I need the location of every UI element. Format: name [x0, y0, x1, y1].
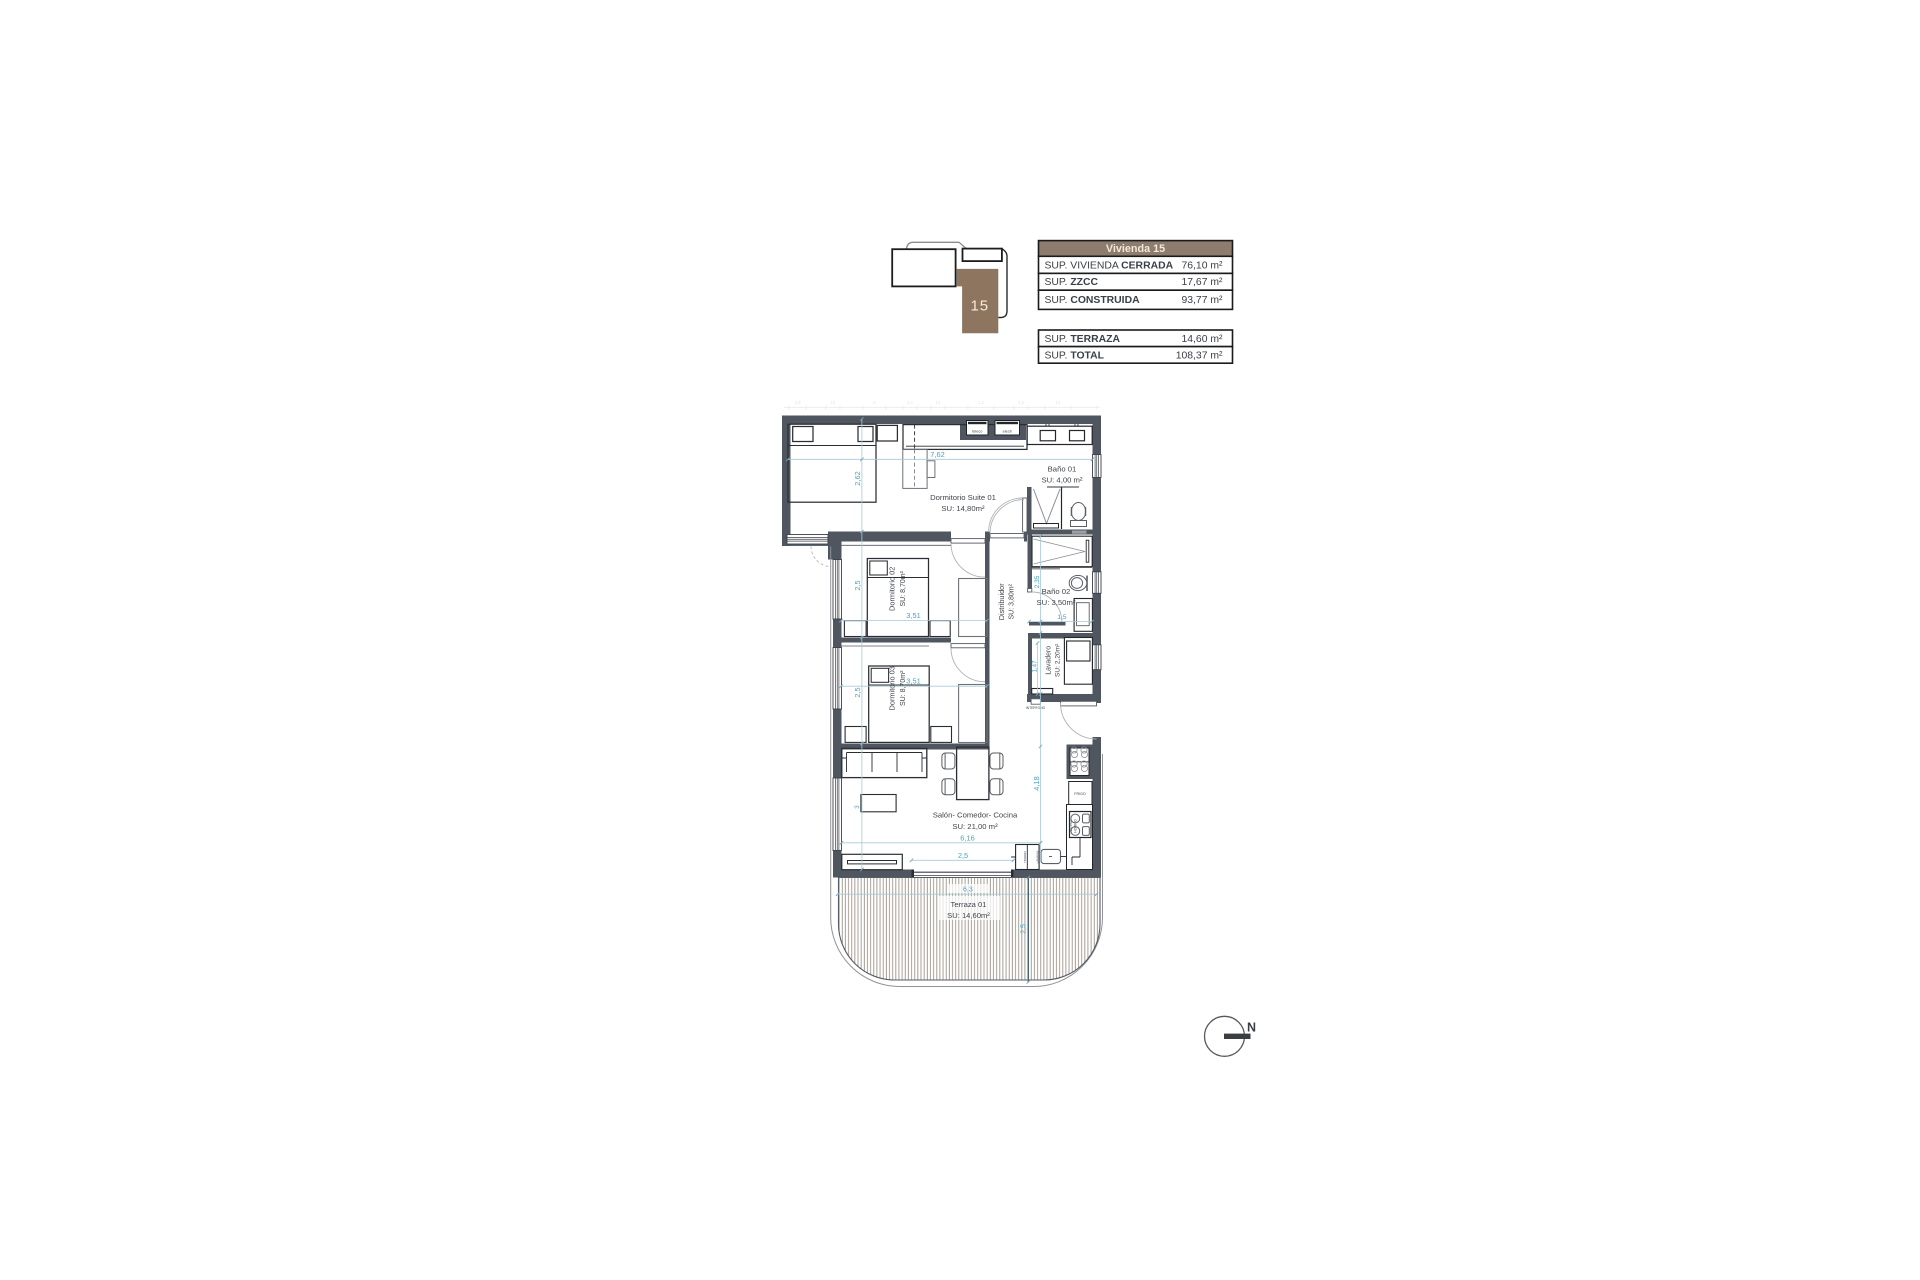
svg-text:93,77 m²: 93,77 m² — [1181, 295, 1223, 306]
svg-text:SUP. ZZCC: SUP. ZZCC — [1045, 277, 1099, 288]
svg-text:SU: 8,70m²: SU: 8,70m² — [900, 670, 907, 706]
svg-text:2,1: 2,1 — [907, 400, 914, 405]
svg-text:Dormitorio 02: Dormitorio 02 — [888, 567, 897, 611]
svg-text:14,60 m²: 14,60 m² — [1181, 334, 1223, 345]
svg-text:Dormitorio Suite 01: Dormitorio Suite 01 — [930, 493, 996, 502]
svg-text:Baño 02: Baño 02 — [1042, 587, 1071, 596]
svg-text:4,18: 4,18 — [1032, 776, 1041, 790]
svg-text:SU: 2,20m²: SU: 2,20m² — [1054, 643, 1061, 677]
svg-text:SU: 14,60m²: SU: 14,60m² — [947, 911, 990, 920]
svg-text:1,47: 1,47 — [1031, 660, 1038, 673]
svg-text:INTERFONO: INTERFONO — [1026, 706, 1046, 710]
svg-text:HORNO: HORNO — [1023, 851, 1027, 863]
svg-text:1,5: 1,5 — [1018, 400, 1025, 405]
svg-text:2,8: 2,8 — [794, 400, 801, 405]
svg-text:3,51: 3,51 — [906, 611, 920, 620]
svg-text:SU: 3,80m²: SU: 3,80m² — [1009, 583, 1016, 619]
svg-text:2,62: 2,62 — [853, 471, 862, 485]
svg-text:FRIGO: FRIGO — [1074, 792, 1086, 796]
svg-text:SU: 21,00 m²: SU: 21,00 m² — [952, 822, 998, 831]
svg-text:Lavadero: Lavadero — [1046, 646, 1053, 675]
svg-text:1,5: 1,5 — [1057, 614, 1066, 621]
svg-text:SU: 3,50m²: SU: 3,50m² — [1037, 598, 1076, 607]
svg-text:3: 3 — [854, 805, 861, 809]
svg-text:Dormitorio 03: Dormitorio 03 — [888, 666, 897, 710]
svg-text:SUP. CONSTRUIDA: SUP. CONSTRUIDA — [1045, 295, 1141, 306]
svg-text:15: 15 — [936, 400, 941, 405]
svg-text:8: 8 — [873, 400, 876, 405]
svg-text:2,35: 2,35 — [1034, 575, 1041, 588]
svg-text:15: 15 — [1056, 400, 1061, 405]
svg-text:17,67 m²: 17,67 m² — [1181, 277, 1223, 288]
svg-text:LAVAVAJ: LAVAVAJ — [1036, 850, 1040, 863]
svg-text:Vivienda 15: Vivienda 15 — [1106, 243, 1165, 255]
svg-text:3,51: 3,51 — [906, 677, 920, 686]
svg-text:SU: 8,70m²: SU: 8,70m² — [900, 570, 907, 606]
svg-text:7,62: 7,62 — [930, 450, 944, 459]
svg-text:76,10 m²: 76,10 m² — [1181, 260, 1223, 271]
svg-text:2,5: 2,5 — [853, 687, 862, 697]
svg-text:SUP. VIVIENDA CERRADA: SUP. VIVIENDA CERRADA — [1045, 260, 1174, 271]
svg-text:electr: electr — [1003, 430, 1013, 434]
svg-text:Terraza 01: Terraza 01 — [951, 900, 987, 909]
svg-text:SUP. TOTAL: SUP. TOTAL — [1045, 350, 1105, 361]
svg-text:2,5: 2,5 — [1021, 924, 1028, 934]
svg-text:Distribuidor: Distribuidor — [997, 583, 1006, 620]
svg-text:Baño 01: Baño 01 — [1048, 465, 1077, 474]
svg-text:6,16: 6,16 — [960, 833, 974, 842]
svg-text:SU: 14,80m²: SU: 14,80m² — [941, 504, 985, 513]
svg-text:6,3: 6,3 — [963, 887, 973, 894]
svg-text:2,5: 2,5 — [853, 580, 862, 590]
svg-text:2,5: 2,5 — [958, 851, 968, 860]
svg-text:SUP. TERRAZA: SUP. TERRAZA — [1045, 334, 1121, 345]
svg-text:teleco: teleco — [972, 430, 982, 434]
svg-text:108,37 m²: 108,37 m² — [1176, 350, 1223, 361]
svg-text:Salón- Comedor- Cocina: Salón- Comedor- Cocina — [933, 811, 1018, 820]
svg-text:VITRO: VITRO — [1069, 820, 1073, 831]
svg-text:15: 15 — [970, 298, 989, 315]
svg-text:1,2: 1,2 — [978, 400, 985, 405]
svg-text:HORNO: HORNO — [1074, 819, 1078, 833]
svg-text:N: N — [1247, 1021, 1256, 1035]
svg-text:15: 15 — [831, 400, 836, 405]
svg-text:SU: 4,00 m²: SU: 4,00 m² — [1041, 476, 1082, 485]
